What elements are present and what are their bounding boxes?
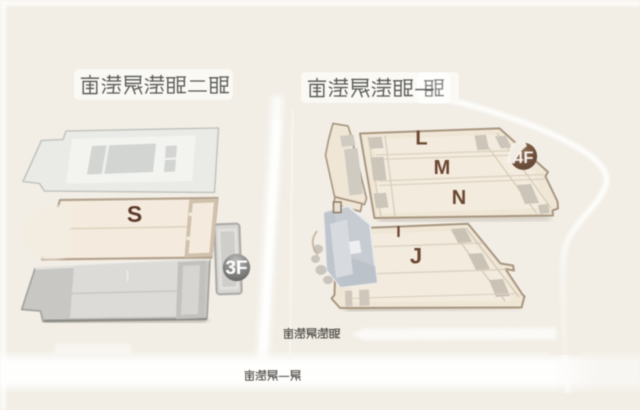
svg-text:3F: 3F	[225, 258, 247, 279]
svg-text:S: S	[127, 201, 142, 227]
svg-text:L: L	[415, 128, 427, 150]
svg-text:M: M	[434, 157, 451, 179]
svg-text:J: J	[410, 244, 422, 269]
svg-text:I: I	[396, 224, 400, 241]
svg-text:N: N	[452, 187, 466, 209]
